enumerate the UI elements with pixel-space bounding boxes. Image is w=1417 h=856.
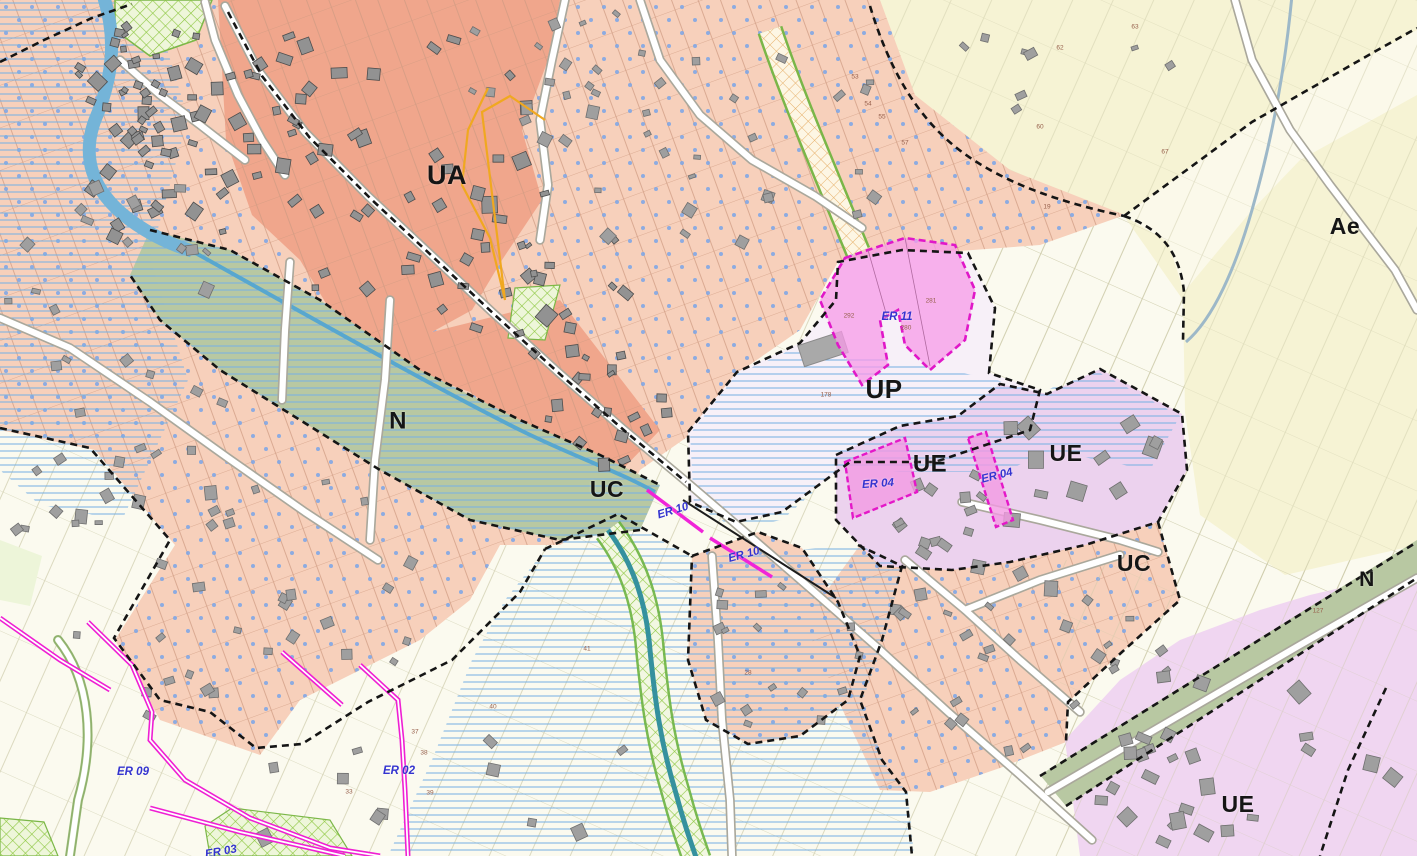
map-canvas[interactable]: UANUCUPUEUEUCAeNUEER 11ER 04ER 04ER 10ER…: [0, 0, 1417, 856]
zoning-map-graphic: [0, 0, 1417, 856]
